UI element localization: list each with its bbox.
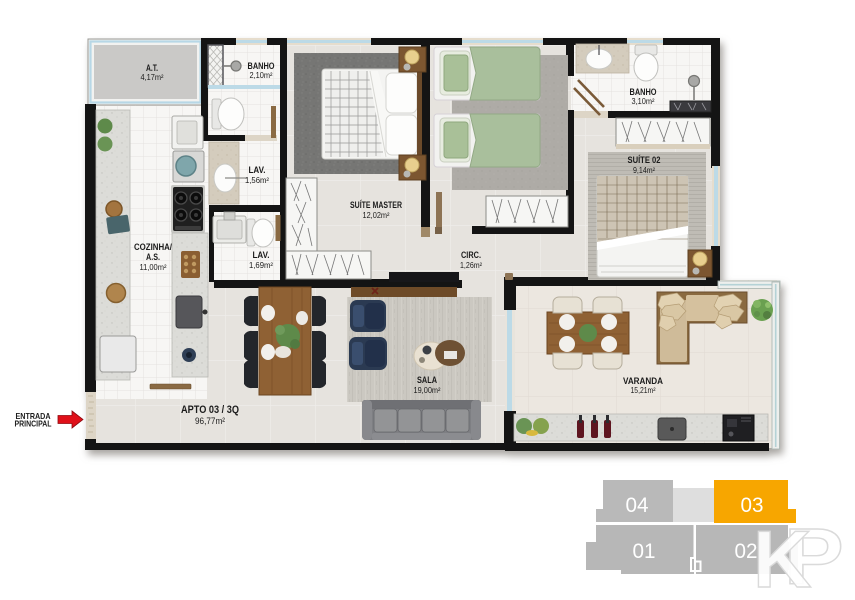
svg-text:A.S.: A.S. [146,252,160,262]
svg-text:BANHO: BANHO [630,87,657,97]
svg-text:LAV.: LAV. [249,165,266,175]
svg-text:VARANDA: VARANDA [623,376,663,386]
svg-text:APTO 03 / 3Q: APTO 03 / 3Q [181,404,239,416]
svg-text:K: K [753,515,812,600]
svg-text:19,00m²: 19,00m² [414,386,441,395]
svg-text:LAV.: LAV. [253,250,270,260]
svg-text:03: 03 [741,494,764,517]
svg-text:BANHO: BANHO [248,61,275,71]
svg-text:1,69m²: 1,69m² [249,261,273,270]
svg-text:1,56m²: 1,56m² [245,176,269,185]
svg-text:1,26m²: 1,26m² [460,261,482,270]
svg-text:96,77m²: 96,77m² [195,416,225,427]
svg-text:9,14m²: 9,14m² [633,166,655,175]
svg-text:3,10m²: 3,10m² [632,97,655,106]
svg-text:4,17m²: 4,17m² [141,73,164,82]
svg-text:04: 04 [626,494,649,517]
svg-text:CIRC.: CIRC. [461,250,481,260]
svg-text:A.T.: A.T. [146,63,158,73]
svg-text:11,00m²: 11,00m² [140,263,167,272]
svg-text:12,02m²: 12,02m² [363,211,390,220]
svg-text:SUÍTE 02: SUÍTE 02 [628,155,661,165]
svg-text:SALA: SALA [417,375,437,385]
svg-text:PRINCIPAL: PRINCIPAL [15,419,52,429]
svg-text:COZINHA/: COZINHA/ [134,242,172,252]
svg-text:2,10m²: 2,10m² [250,71,273,80]
svg-text:15,21m²: 15,21m² [631,386,656,395]
svg-text:01: 01 [633,540,656,563]
svg-text:SUÍTE MASTER: SUÍTE MASTER [350,200,402,210]
